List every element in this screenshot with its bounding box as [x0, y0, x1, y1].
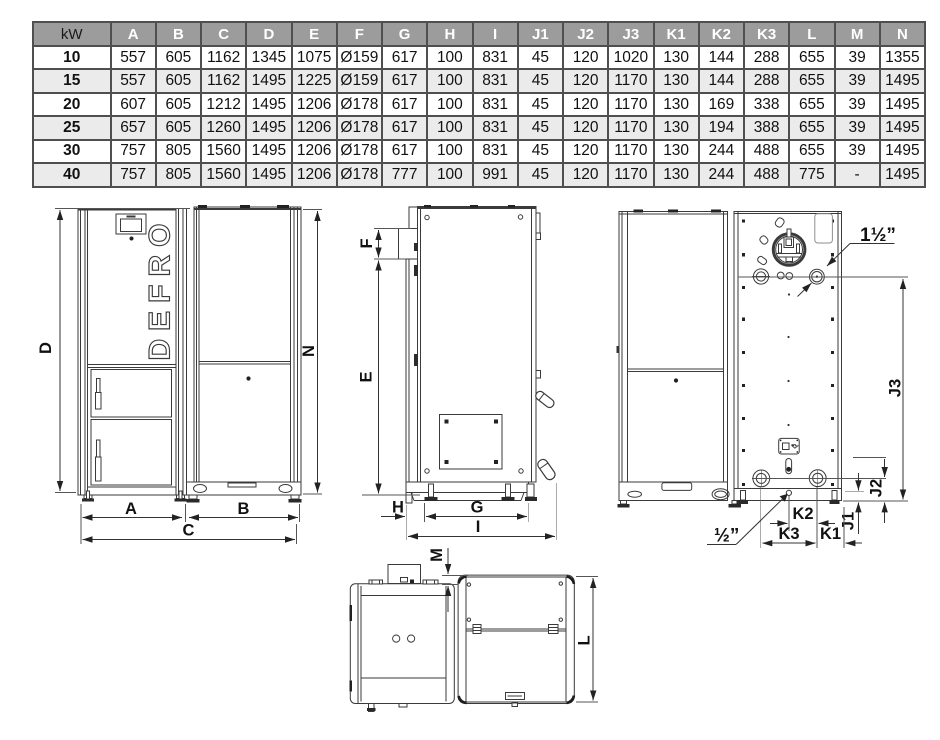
svg-text:½”: ½”: [714, 526, 739, 547]
svg-text:D: D: [37, 342, 55, 354]
svg-text:L: L: [576, 635, 594, 645]
svg-text:K1: K1: [820, 525, 841, 543]
svg-text:M: M: [428, 548, 446, 562]
svg-text:C: C: [183, 522, 195, 540]
svg-text:J2: J2: [868, 479, 886, 497]
svg-text:J1: J1: [840, 512, 858, 530]
svg-text:N: N: [300, 345, 318, 357]
svg-text:K2: K2: [792, 505, 813, 523]
svg-text:I: I: [476, 518, 481, 536]
svg-text:H: H: [392, 499, 404, 517]
svg-text:K3: K3: [778, 525, 799, 543]
svg-text:A: A: [125, 500, 137, 518]
svg-text:1½”: 1½”: [860, 225, 896, 246]
svg-text:G: G: [471, 499, 484, 517]
svg-text:J3: J3: [887, 379, 905, 397]
svg-text:B: B: [238, 500, 250, 518]
svg-text:E: E: [358, 371, 376, 382]
svg-text:F: F: [358, 238, 376, 248]
svg-text:DEFRO: DEFRO: [144, 216, 177, 361]
